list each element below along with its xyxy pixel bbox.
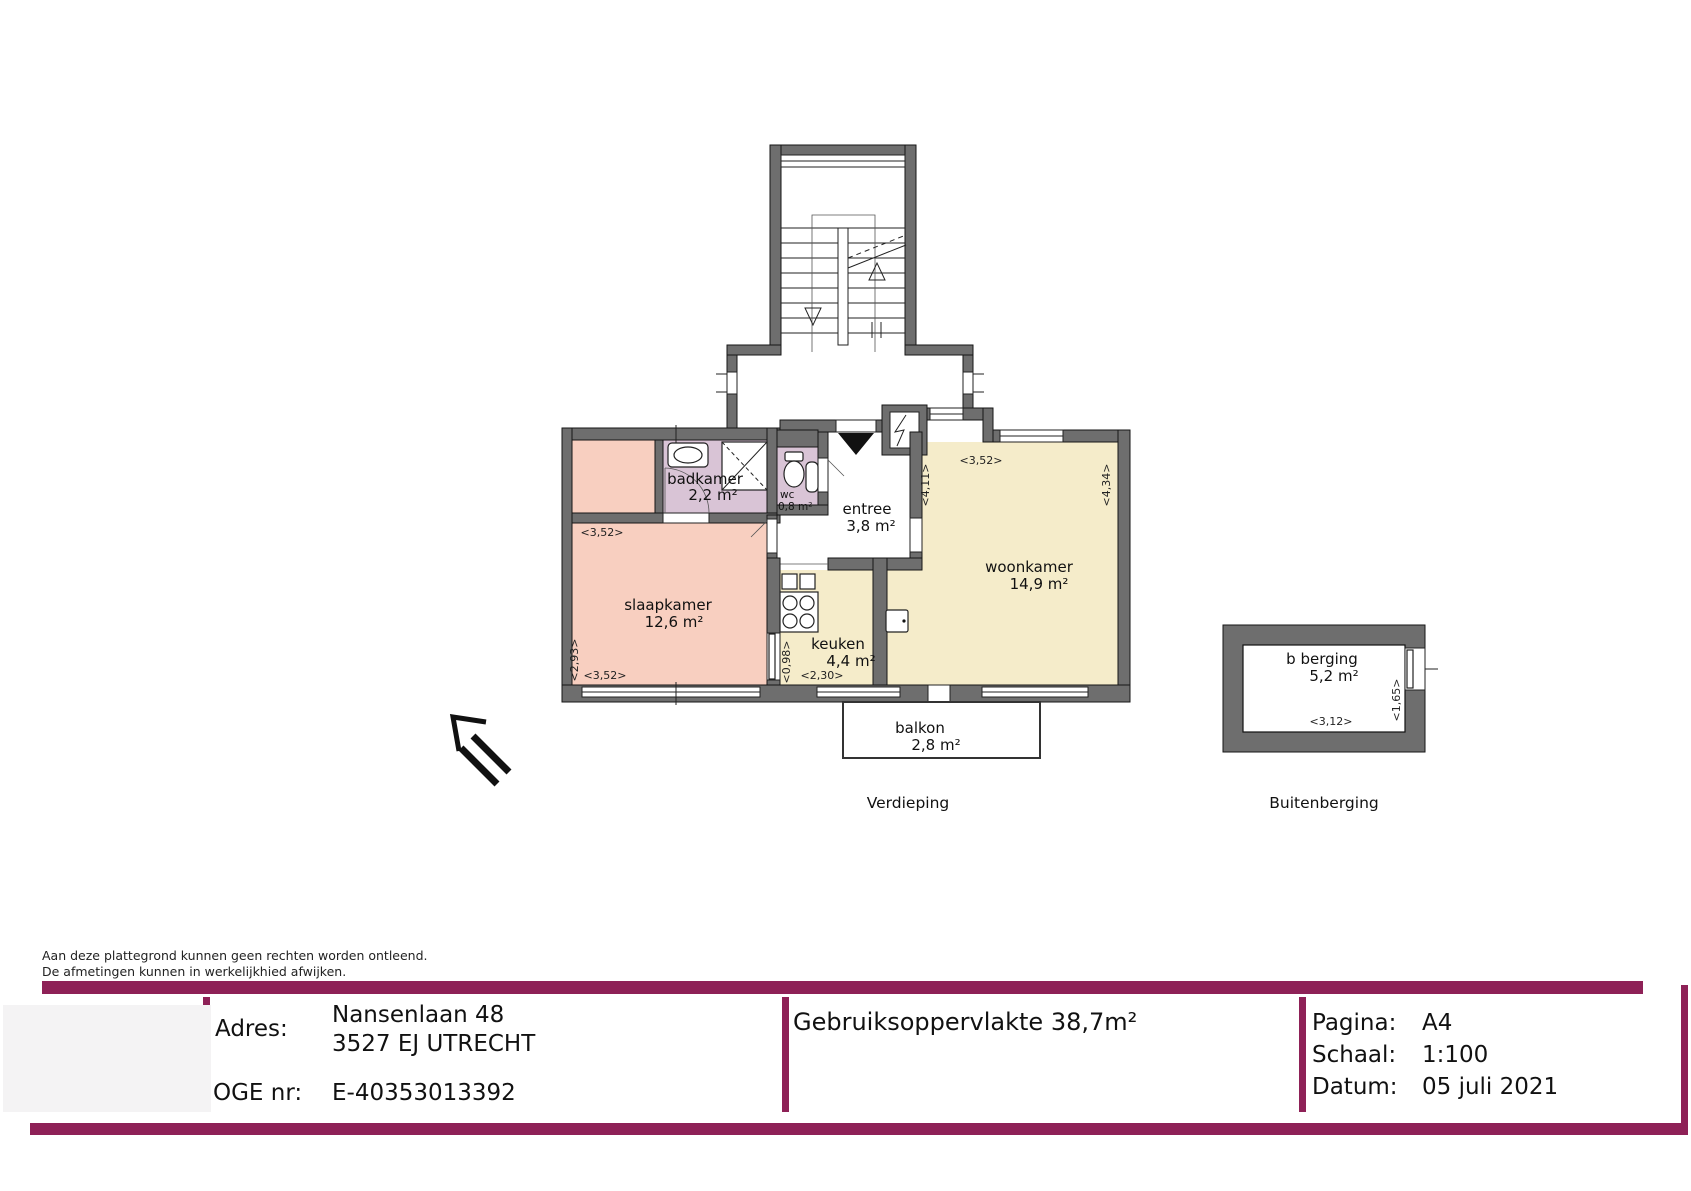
wc-area: 0,8 m² bbox=[778, 501, 812, 513]
adres-city: 3527 EJ UTRECHT bbox=[332, 1031, 535, 1057]
berging-area: 5,2 m² bbox=[1309, 667, 1358, 685]
berging-label: b berging bbox=[1286, 650, 1358, 668]
appliance-icon bbox=[886, 610, 908, 632]
slaapkamer-label: slaapkamer bbox=[624, 596, 712, 614]
hand-basin-icon bbox=[806, 462, 818, 492]
disclaimer-line2: De afmetingen kunnen in werkelijkhied af… bbox=[42, 964, 428, 980]
dimension-label: <0,98> bbox=[780, 641, 793, 684]
pagina-label: Pagina: bbox=[1312, 1010, 1396, 1036]
titleblock-divider-2 bbox=[782, 997, 789, 1112]
stairwell-left-wall bbox=[770, 145, 781, 355]
stove-icon bbox=[780, 592, 818, 632]
stairwell-top-wall bbox=[770, 145, 916, 155]
slaapkamer-door-opening bbox=[767, 519, 777, 553]
wc-label: wc bbox=[780, 489, 795, 501]
titleblock-divider-3 bbox=[1299, 997, 1306, 1112]
dimension-label: <3,12> bbox=[1310, 715, 1353, 728]
woonkamer-door-opening bbox=[910, 518, 922, 552]
dimension-label: <4,11> bbox=[919, 464, 932, 507]
landing-left-wall bbox=[727, 355, 737, 440]
schaal-value: 1:100 bbox=[1422, 1042, 1488, 1068]
keuken-label: keuken bbox=[811, 635, 865, 653]
disclaimer-line1: Aan deze plattegrond kunnen geen rechten… bbox=[42, 948, 428, 964]
schaal-label: Schaal: bbox=[1312, 1042, 1396, 1068]
adres-label: Adres: bbox=[215, 1016, 288, 1042]
outdoor-storage-caption: Buitenberging bbox=[1269, 794, 1378, 812]
dimension-label: <2,30> bbox=[801, 669, 844, 682]
entree-area: 3,8 m² bbox=[846, 517, 895, 535]
woonkamer-area-bottom bbox=[887, 560, 1118, 685]
disclaimer: Aan deze plattegrond kunnen geen rechten… bbox=[42, 948, 428, 979]
datum-value: 05 juli 2021 bbox=[1422, 1074, 1558, 1100]
floorplan-page: balkon 2,8 m² b berging 5,2 m² <3,12> <1… bbox=[0, 0, 1691, 1191]
balkon-area: 2,8 m² bbox=[911, 736, 960, 754]
slaapkamer-upper-area bbox=[572, 440, 655, 513]
logo-box: woonın bbox=[3, 1005, 211, 1112]
berging-door-leaf bbox=[1407, 650, 1413, 688]
front-door-marker-icon bbox=[838, 433, 874, 455]
titleblock-top-bar bbox=[42, 981, 1643, 994]
landing-left-window bbox=[727, 372, 737, 394]
stairwell bbox=[770, 145, 916, 355]
titleblock-right-edge bbox=[1681, 985, 1688, 1135]
floorplan-drawing: balkon 2,8 m² b berging 5,2 m² <3,12> <1… bbox=[430, 120, 1470, 830]
oge-value: E-40353013392 bbox=[332, 1080, 516, 1106]
badkamer-area: 2,2 m² bbox=[688, 486, 737, 504]
dimension-label: <1,65> bbox=[1390, 679, 1403, 722]
dimension-label: <3,52> bbox=[581, 526, 624, 539]
dimension-label: <3,52> bbox=[584, 669, 627, 682]
landing-right-window bbox=[963, 372, 973, 394]
keuken-door-leaf bbox=[769, 634, 775, 679]
balkon: balkon 2,8 m² bbox=[843, 702, 1040, 758]
woonkamer-label: woonkamer bbox=[985, 558, 1074, 576]
dimension-label: <3,52> bbox=[960, 454, 1003, 467]
badkamer-door-opening bbox=[663, 513, 709, 523]
dimension-label: <4,34> bbox=[1100, 464, 1113, 507]
front-door-opening bbox=[836, 420, 876, 432]
wc-top-wall bbox=[777, 430, 818, 447]
floorplan-caption: Verdieping bbox=[867, 794, 950, 812]
stairwell-right-wall bbox=[905, 145, 916, 355]
stairs-down-arrow-icon bbox=[805, 308, 821, 325]
titleblock-bottom-bar bbox=[30, 1123, 1688, 1135]
stair-stringer bbox=[838, 228, 848, 345]
badkamer-left-wall bbox=[655, 440, 663, 515]
badkamer-right-wall bbox=[767, 428, 777, 515]
entree-label: entree bbox=[843, 500, 892, 518]
balkon-label: balkon bbox=[895, 719, 945, 737]
north-arrow-icon bbox=[453, 717, 509, 784]
landing-right-connector-wall bbox=[905, 345, 973, 355]
woonkamer-area-top bbox=[922, 442, 1118, 562]
balkon-door-opening bbox=[928, 685, 950, 702]
dimension-label: <2,93> bbox=[568, 639, 581, 682]
woonkamer-area: 14,9 m² bbox=[1010, 575, 1069, 593]
toilet-icon bbox=[784, 452, 804, 487]
pagina-value: A4 bbox=[1422, 1010, 1452, 1036]
right-wall bbox=[1118, 430, 1130, 702]
wc-door-opening bbox=[818, 458, 828, 492]
top-wall-left bbox=[562, 428, 780, 440]
datum-label: Datum: bbox=[1312, 1074, 1398, 1100]
stairs bbox=[781, 215, 906, 352]
stairs-up-arrow-icon bbox=[869, 263, 885, 280]
berging: b berging 5,2 m² <3,12> <1,65> bbox=[1223, 625, 1438, 752]
keuken-area: 4,4 m² bbox=[826, 652, 875, 670]
slaapkamer-area: 12,6 m² bbox=[645, 613, 704, 631]
landing-left-connector-wall bbox=[727, 345, 781, 355]
usable-area: Gebruiksoppervlakte 38,7m² bbox=[793, 1008, 1137, 1036]
oge-label: OGE nr: bbox=[213, 1080, 302, 1106]
adres-street: Nansenlaan 48 bbox=[332, 1002, 504, 1028]
facade-jog-wall bbox=[983, 408, 993, 442]
